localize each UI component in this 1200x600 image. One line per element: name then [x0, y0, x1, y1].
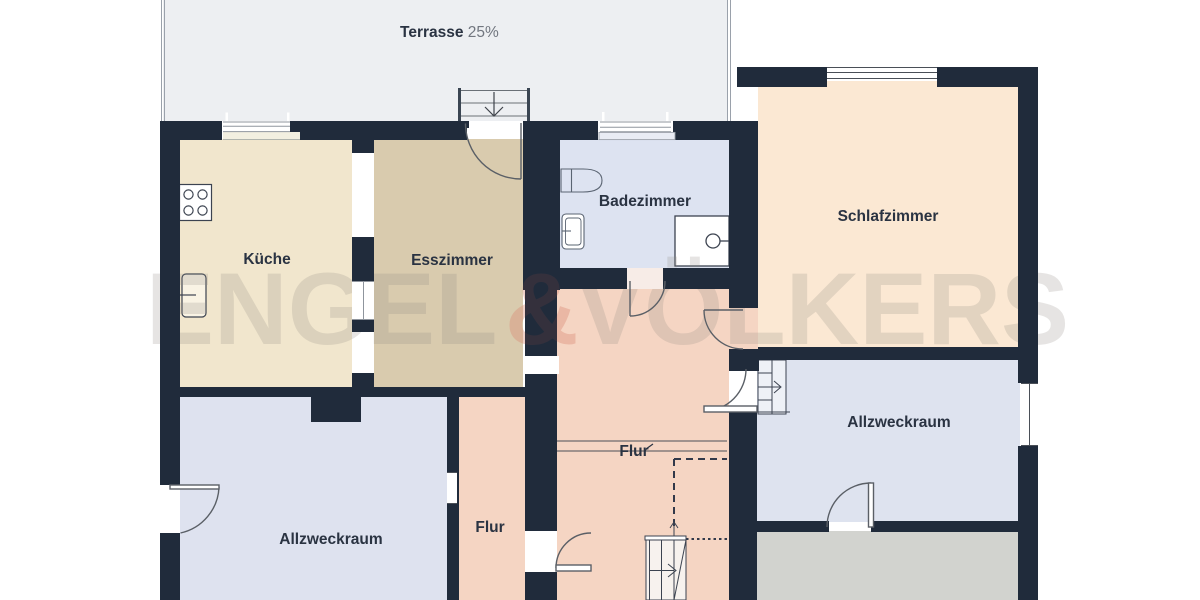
svg-text:Küche: Küche [243, 251, 291, 268]
svg-text:Terrasse 25%: Terrasse 25% [400, 24, 499, 41]
svg-text:Allzweckraum: Allzweckraum [847, 414, 950, 431]
svg-text:ENGEL: ENGEL [146, 252, 497, 366]
svg-text:&: & [505, 252, 579, 366]
svg-text:Badezimmer: Badezimmer [599, 193, 691, 210]
svg-text:Flur: Flur [619, 443, 648, 460]
svg-text:Allzweckraum: Allzweckraum [279, 531, 382, 548]
svg-text:Esszimmer: Esszimmer [411, 252, 493, 269]
svg-text:Schlafzimmer: Schlafzimmer [838, 208, 939, 225]
svg-text:Flur: Flur [475, 519, 504, 536]
